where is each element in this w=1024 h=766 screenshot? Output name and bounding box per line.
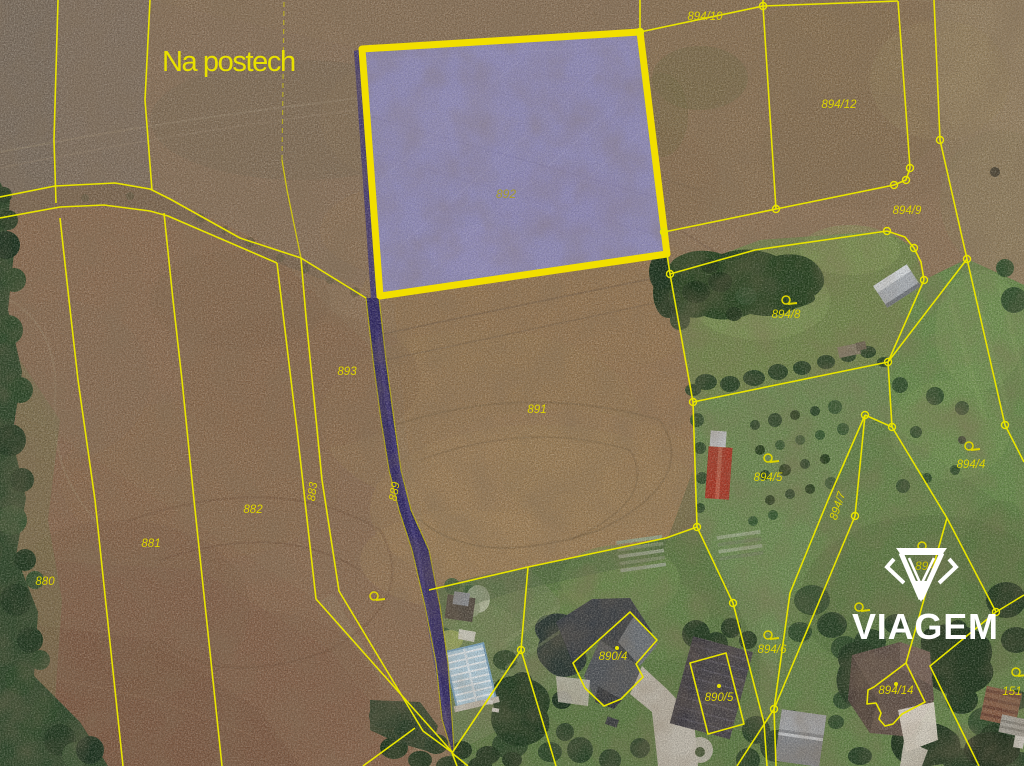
svg-text:882: 882 bbox=[243, 504, 263, 516]
svg-text:894/10: 894/10 bbox=[687, 11, 723, 23]
svg-text:894/4: 894/4 bbox=[957, 459, 986, 471]
svg-text:151: 151 bbox=[1002, 686, 1021, 698]
svg-text:894/6: 894/6 bbox=[758, 644, 787, 656]
svg-text:890/4: 890/4 bbox=[599, 651, 628, 663]
svg-text:890/5: 890/5 bbox=[705, 692, 734, 704]
svg-text:891: 891 bbox=[527, 404, 546, 416]
svg-text:883: 883 bbox=[306, 481, 320, 502]
svg-text:881: 881 bbox=[141, 538, 160, 550]
svg-text:VIAGEM: VIAGEM bbox=[852, 606, 999, 647]
svg-text:893: 893 bbox=[337, 366, 357, 378]
svg-text:Na postech: Na postech bbox=[162, 46, 295, 78]
svg-text:894/12: 894/12 bbox=[821, 99, 857, 111]
svg-text:894/9: 894/9 bbox=[893, 205, 922, 217]
svg-text:894/14: 894/14 bbox=[878, 685, 913, 697]
svg-text:894/8: 894/8 bbox=[772, 309, 801, 321]
svg-text:880: 880 bbox=[35, 576, 55, 588]
svg-text:892: 892 bbox=[496, 187, 516, 201]
svg-text:894/5: 894/5 bbox=[754, 472, 783, 484]
